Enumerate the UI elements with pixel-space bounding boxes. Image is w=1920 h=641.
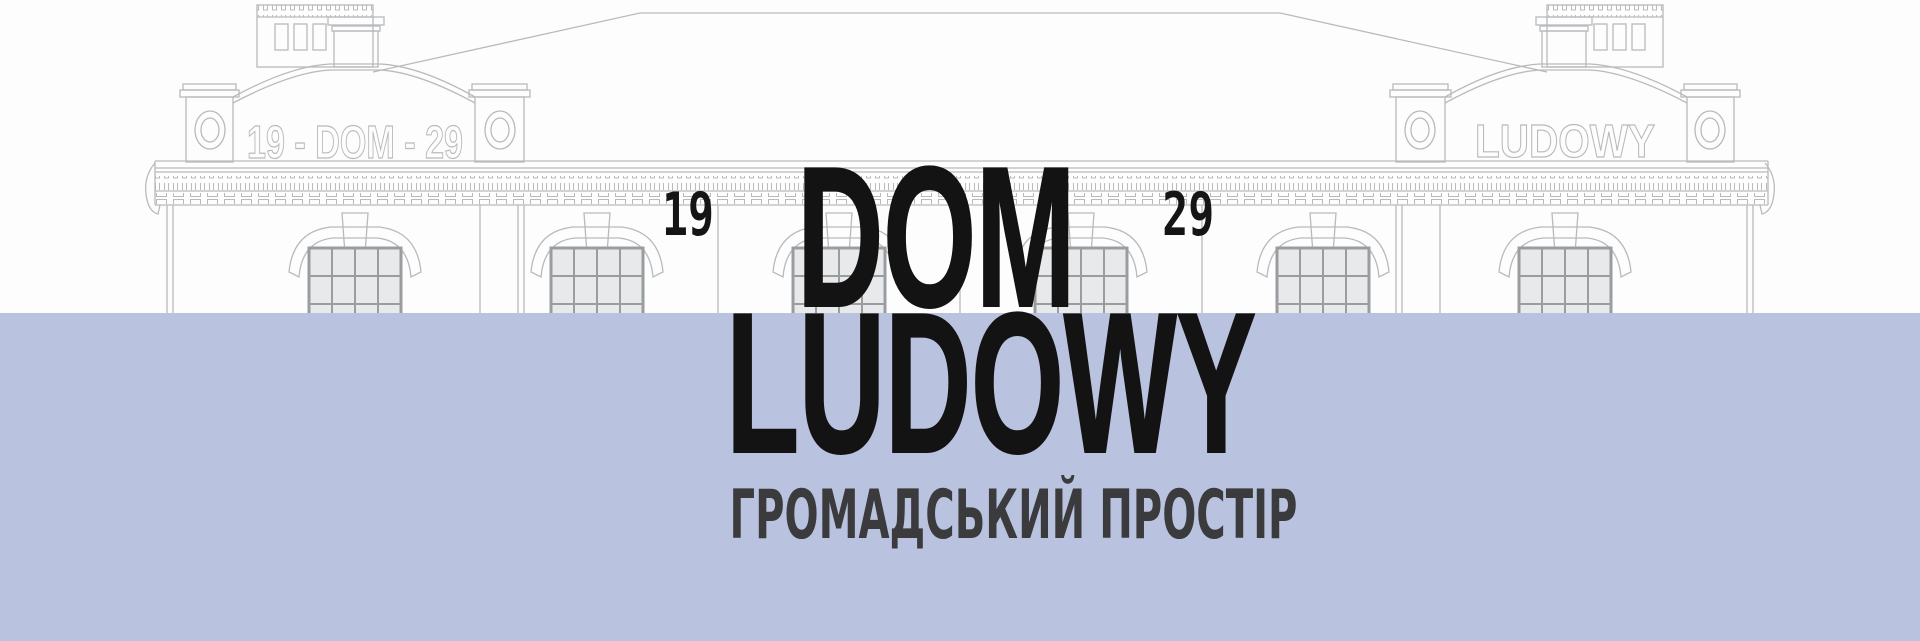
title-line-ludowy: LUDOWY <box>726 284 1146 484</box>
title-block: 19 29 DOM LUDOWY ГРОМАДСЬКИЙ ПРОСТІР <box>586 0 1286 641</box>
left-pediment-relief-text: 19 - DOM - 29 <box>247 116 463 168</box>
hero-banner: 19 - DOM - 29 LUDOWY 19 29 DOM LUDOWY ГР… <box>0 0 1920 641</box>
year-29: 29 <box>1162 185 1214 245</box>
year-19: 19 <box>662 185 714 245</box>
right-pediment-relief-text: LUDOWY <box>1475 115 1655 167</box>
subtitle-public-space: ГРОМАДСЬКИЙ ПРОСТІР <box>730 482 1143 550</box>
